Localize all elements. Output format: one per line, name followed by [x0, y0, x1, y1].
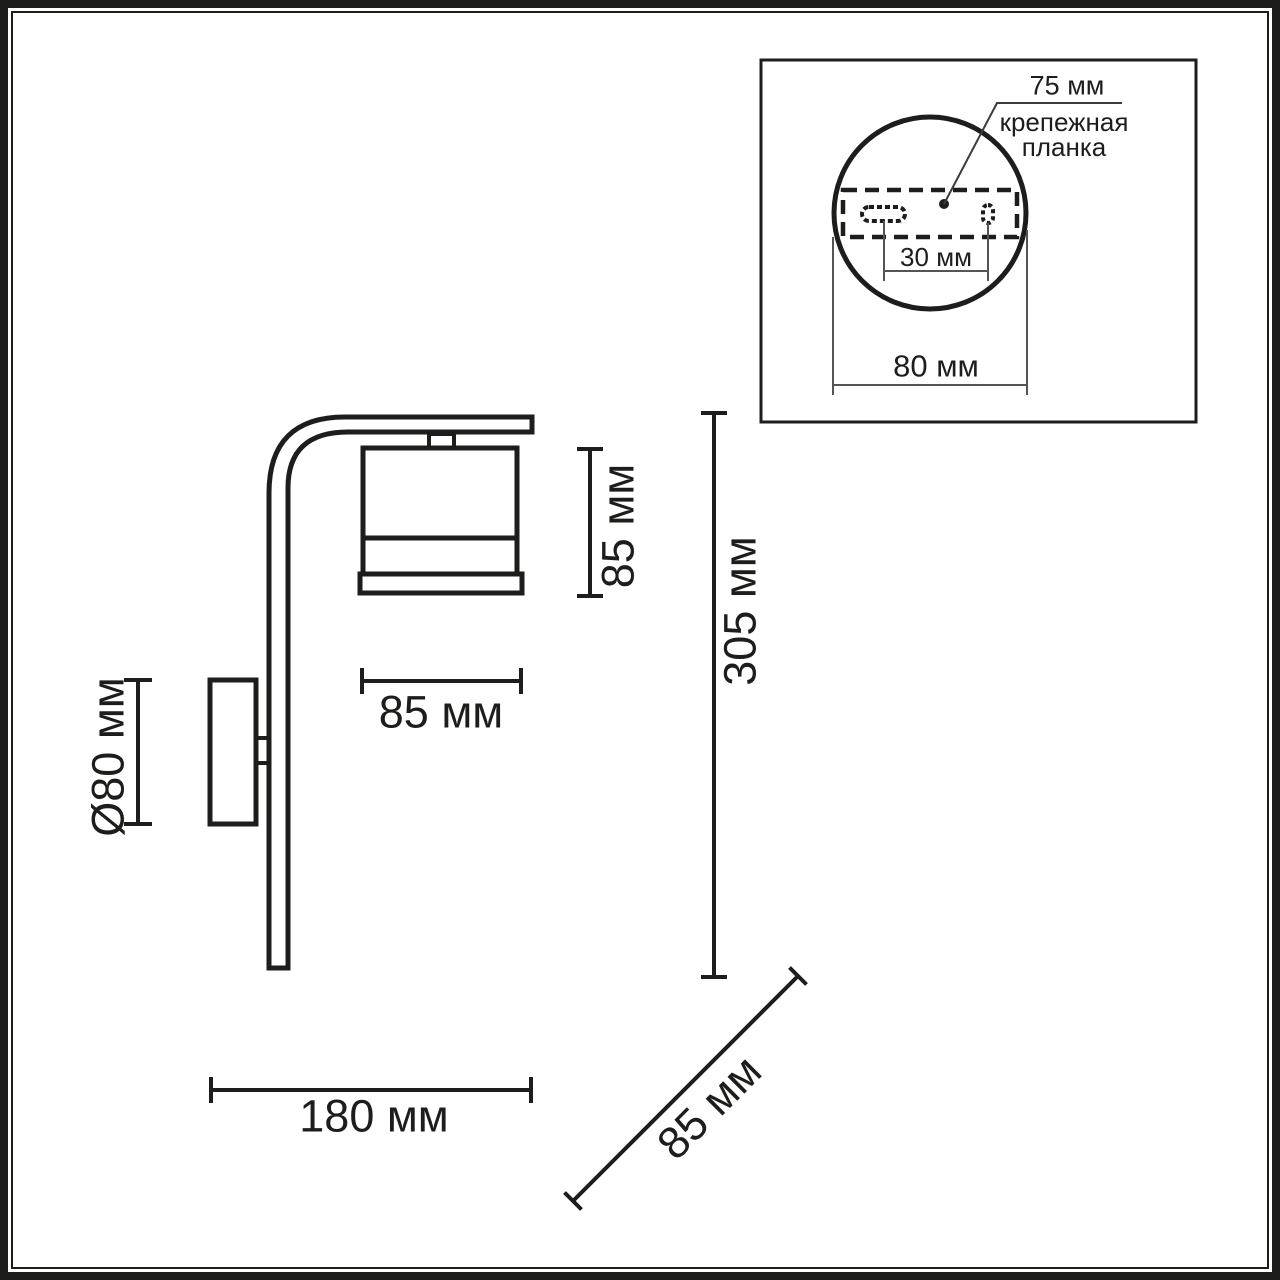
inset-hole-spacing-label: 30 мм: [900, 244, 972, 270]
technical-drawing-page: Ø80 мм 85 мм 305 мм 85 мм 180 мм 85 мм 7…: [0, 0, 1280, 1280]
inset-plate-length-label: 75 мм: [1030, 73, 1105, 100]
mounting-plate-dashed-outline: [843, 190, 1017, 237]
dim-total-height-label: 305 мм: [718, 536, 763, 685]
shade-band: [363, 538, 517, 574]
inset-base-width-label: 80 мм: [893, 351, 979, 382]
dim-shade-depth-line: [573, 976, 798, 1201]
mounting-slot-left: [862, 207, 905, 221]
wall-base-connector: [256, 738, 269, 763]
shade-body: [363, 448, 517, 538]
drawing-canvas: [0, 0, 1280, 1280]
mounting-slot-right: [983, 205, 993, 223]
dim-total-depth-label: 180 мм: [299, 1094, 448, 1139]
wall-base: [210, 680, 256, 824]
dim-shade-width-label: 85 мм: [379, 690, 503, 735]
dim-base-diameter-label: Ø80 мм: [86, 677, 131, 836]
dim-shade-height-label: 85 мм: [596, 464, 641, 588]
inset-plate-name-line2: планка: [1022, 134, 1106, 160]
shade-bottom-ring: [360, 574, 522, 593]
